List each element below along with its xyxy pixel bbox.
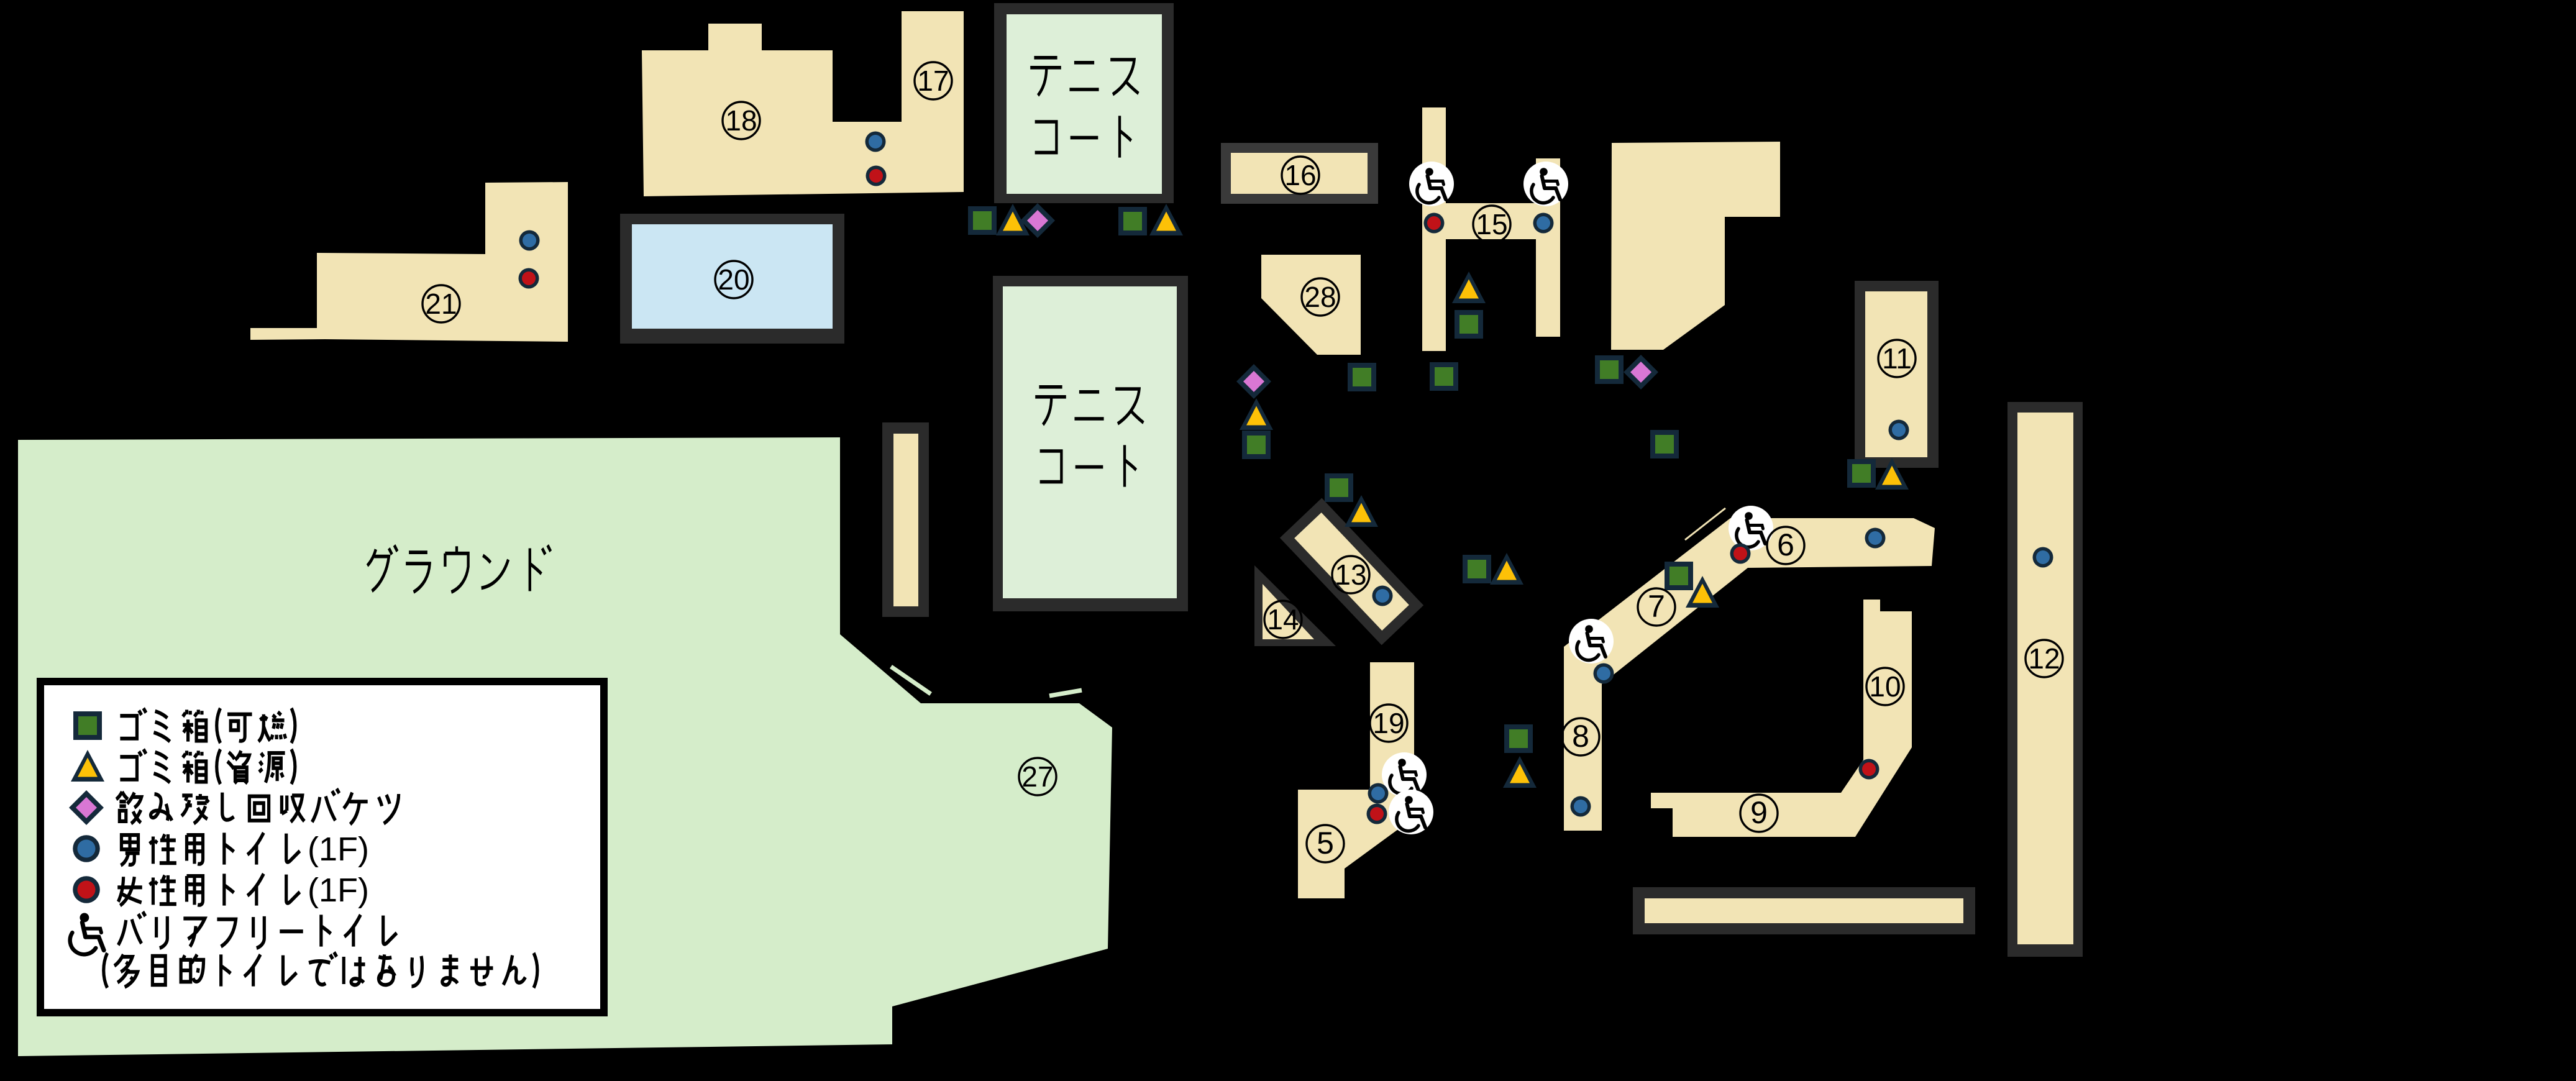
svg-text:28: 28	[1304, 281, 1336, 313]
svg-text:21: 21	[425, 288, 457, 320]
svg-text:19: 19	[1372, 707, 1404, 739]
svg-text:13: 13	[1335, 559, 1366, 591]
svg-text:8: 8	[1572, 719, 1589, 754]
svg-text:6: 6	[1777, 527, 1794, 562]
svg-text:7: 7	[1648, 589, 1665, 624]
svg-text:20: 20	[718, 263, 749, 296]
svg-text:(1F): (1F)	[308, 872, 369, 909]
svg-text:12: 12	[2028, 642, 2060, 675]
svg-text:14: 14	[1267, 603, 1299, 636]
svg-text:18: 18	[725, 104, 757, 137]
svg-text:15: 15	[1476, 208, 1507, 240]
svg-text:9: 9	[1750, 795, 1768, 830]
svg-text:(1F): (1F)	[308, 831, 369, 868]
svg-text:10: 10	[1869, 670, 1901, 703]
svg-text:11: 11	[1882, 342, 1912, 375]
svg-text:17: 17	[917, 65, 949, 97]
svg-text:27: 27	[1021, 760, 1053, 793]
svg-text:5: 5	[1317, 826, 1334, 860]
svg-text:16: 16	[1284, 159, 1316, 191]
